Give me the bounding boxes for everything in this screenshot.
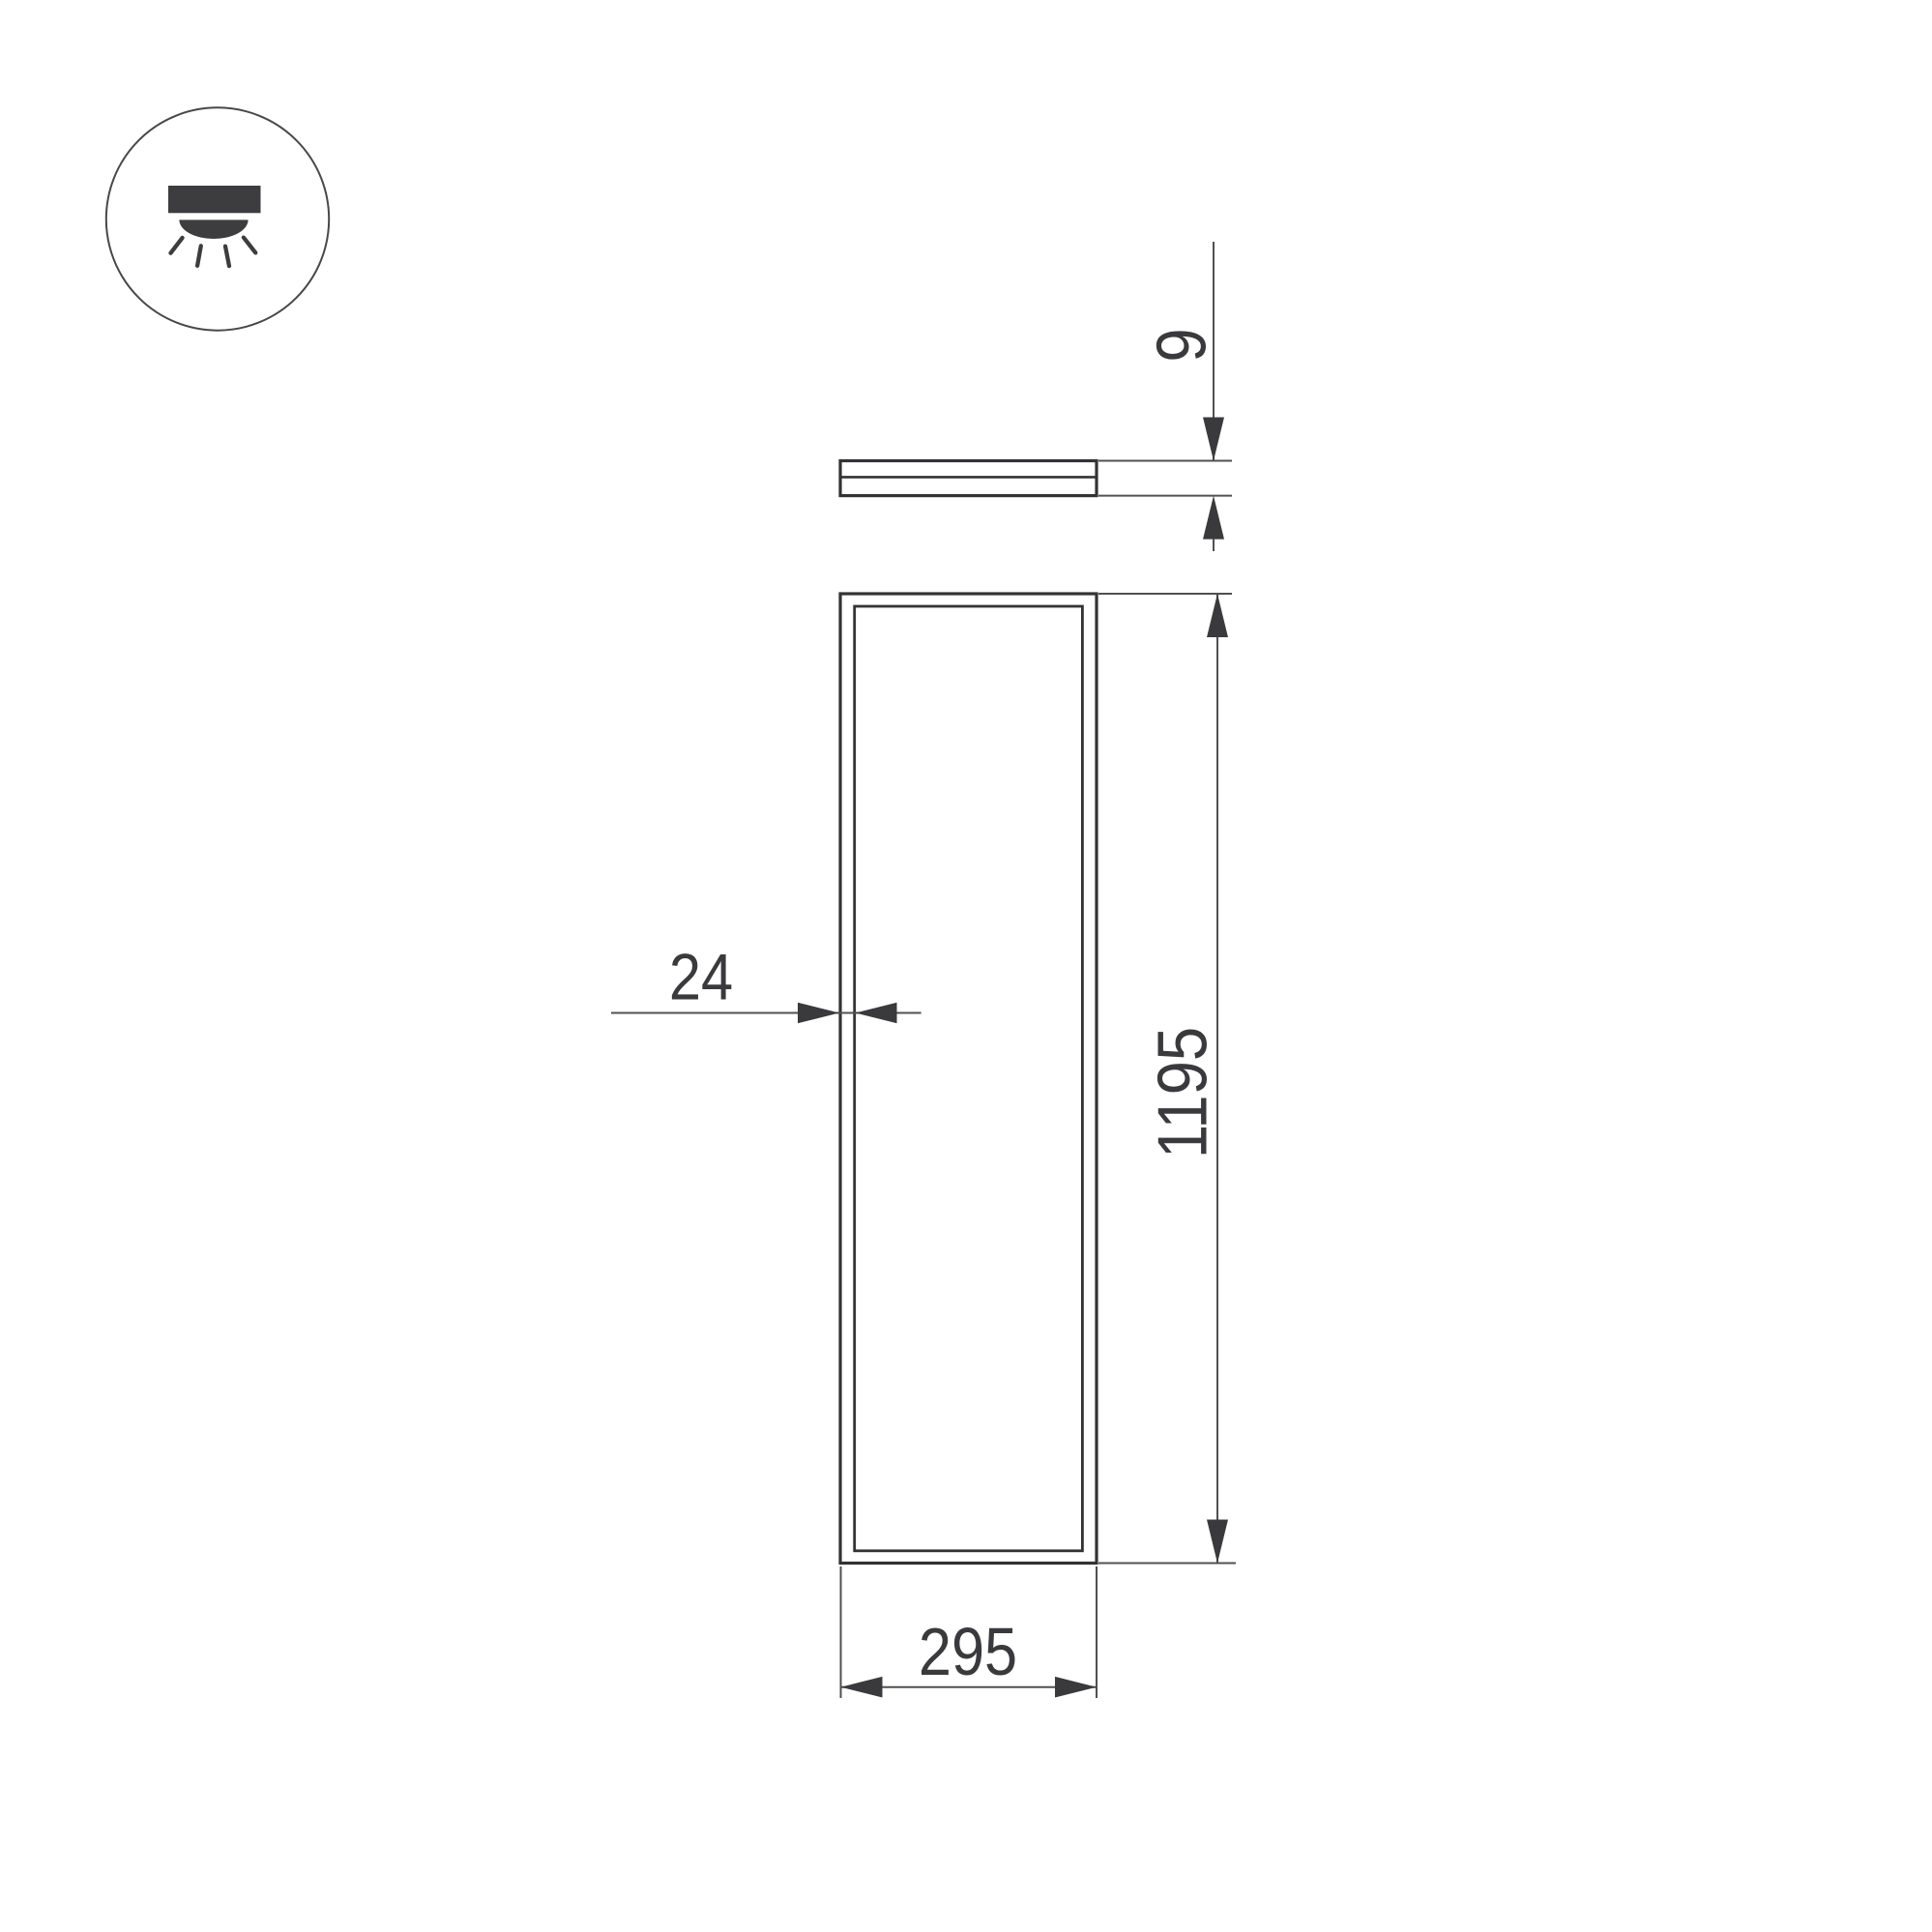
svg-text:9: 9 [1144,328,1221,362]
svg-text:24: 24 [669,940,733,1014]
svg-text:1195: 1195 [1145,1027,1222,1158]
svg-text:295: 295 [919,1613,1017,1689]
